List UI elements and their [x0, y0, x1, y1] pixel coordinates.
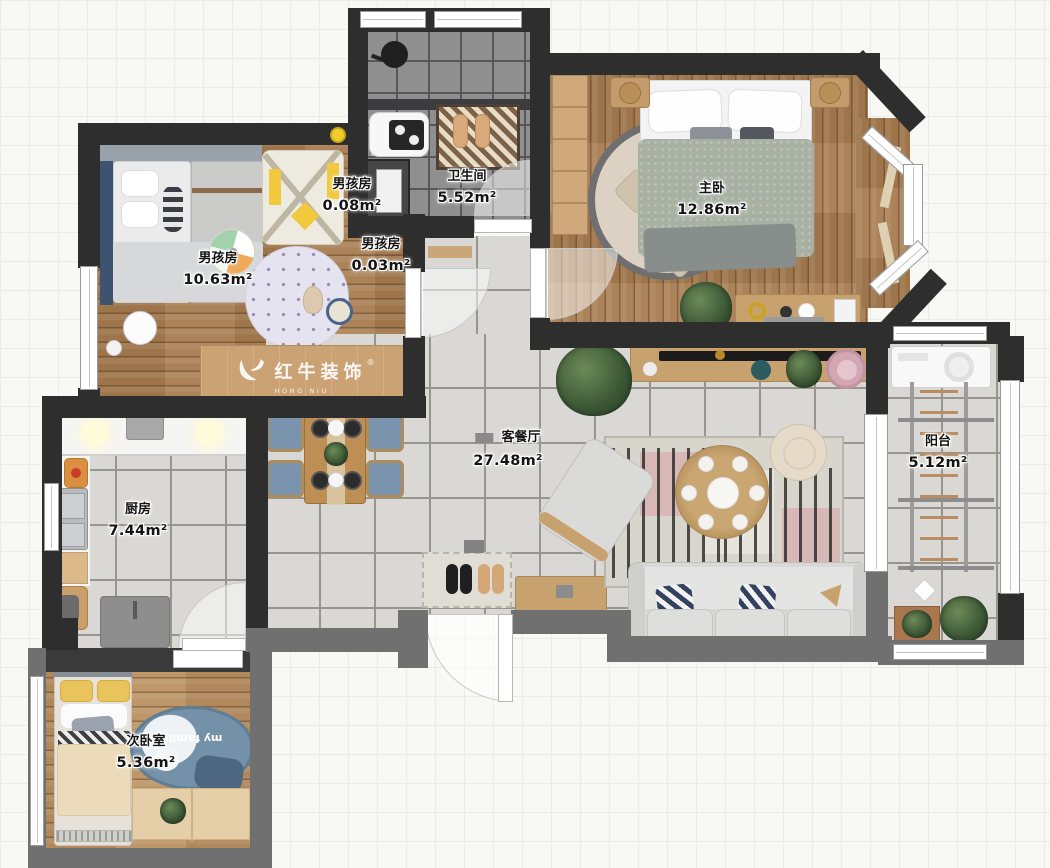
- boys-room-door-leaf: [405, 268, 421, 338]
- wall-entry-pillar: [398, 610, 428, 668]
- yellow-pillow: [97, 680, 130, 702]
- window-mullion: [876, 417, 877, 569]
- room-area: 0.03m²: [351, 259, 410, 274]
- tomato: [71, 468, 81, 478]
- room-area: 5.52m²: [437, 191, 496, 206]
- room-area: 27.48m²: [473, 454, 542, 469]
- window-mullion: [363, 19, 423, 20]
- doormat-box: [464, 540, 484, 553]
- dining-chair: [266, 414, 304, 452]
- window-mullion: [896, 652, 984, 653]
- window-mullion: [1010, 383, 1011, 591]
- ceiling-light: [82, 420, 108, 446]
- window-mullion: [913, 167, 914, 243]
- lamp-shade: [732, 514, 748, 530]
- shower-head: [381, 41, 408, 68]
- black-shoe: [460, 564, 472, 594]
- nightstand: [810, 77, 850, 108]
- second-bedroom-doorway: [173, 650, 243, 668]
- window-balcony-bottom: [893, 644, 987, 660]
- room-label-master-bedroom: 主卧 12.86m²: [677, 182, 746, 218]
- room-name: 厨房: [108, 503, 167, 516]
- room-label-kitchen: 厨房 7.44m²: [108, 503, 167, 539]
- boys-toy-bin: [326, 298, 353, 325]
- tan-slipper: [478, 564, 490, 594]
- armchair-seat: [837, 360, 857, 380]
- planter-plant: [902, 610, 932, 638]
- fridge: [100, 596, 170, 648]
- serving-plate: [328, 472, 344, 488]
- wall-master-left-lower: [530, 318, 550, 350]
- master-wardrobe: [552, 75, 588, 235]
- wall-boys-top: [78, 123, 360, 145]
- fridge-handle: [133, 601, 137, 619]
- lamp-shade: [681, 485, 697, 501]
- wall-balcony-right-block: [998, 336, 1024, 382]
- watermark-band: 红牛装饰 ® HONG NIU DECORATION: [200, 345, 410, 397]
- lamp-shade: [698, 514, 714, 530]
- window-boys-left: [80, 266, 98, 390]
- desk-divider: [191, 789, 193, 841]
- room-label-bathroom: 卫生间 5.52m²: [437, 170, 496, 206]
- wall-living-balcony-divider-top: [866, 336, 888, 416]
- boys-polkadot-rug: [245, 246, 349, 350]
- washer-panel: [898, 353, 928, 361]
- nightstand: [610, 77, 650, 108]
- room-label-boys-closet-low: 男孩房 0.03m²: [351, 238, 410, 274]
- room-name: 次卧室: [116, 735, 175, 748]
- hall-threshold: [428, 246, 472, 258]
- drying-rack-crossbar: [898, 566, 994, 570]
- window-mullion: [896, 333, 984, 334]
- bathroom-rug: [436, 104, 520, 170]
- master-throw-blanket: [643, 223, 796, 272]
- tv-decor-teal: [751, 360, 771, 380]
- living-plant-large: [556, 344, 632, 416]
- entry-doormat: [422, 552, 512, 608]
- window-balcony-top: [893, 326, 987, 341]
- window-bath-top-1: [360, 11, 426, 28]
- balcony-plant: [940, 596, 988, 642]
- drying-rack-crossbar: [898, 418, 994, 422]
- window-mullion: [437, 19, 519, 20]
- wall-boys-left-upper: [78, 123, 100, 268]
- living-label-swatch: [475, 433, 493, 443]
- room-area: 5.12m²: [908, 456, 967, 471]
- dinner-plate: [343, 419, 362, 438]
- dresser-box: [834, 299, 856, 323]
- room-name: 客餐厅: [501, 431, 540, 444]
- pouf: [770, 424, 827, 481]
- wall-living-balcony-divider-bottom: [866, 570, 888, 648]
- drying-rack-pole: [964, 382, 968, 572]
- master-door-leaf: [530, 248, 546, 318]
- washer-drum: [944, 352, 974, 382]
- wall-balcony-right-block: [998, 593, 1024, 643]
- window-bay-middle: [903, 164, 923, 246]
- boys-striped-pillow: [163, 186, 183, 232]
- window-balcony-right: [1000, 380, 1020, 594]
- room-label-balcony: 阳台 5.12m²: [908, 435, 967, 471]
- pink-armchair: [826, 349, 866, 389]
- bathroom-door-leaf: [474, 219, 532, 233]
- wall-bath-bottom: [348, 216, 474, 238]
- watermark-registered-icon: ®: [367, 358, 375, 367]
- wall-master-bottom: [548, 322, 890, 348]
- drying-rack-rungs: [920, 390, 958, 570]
- desk-plant: [160, 798, 186, 824]
- room-name: 主卧: [677, 182, 746, 195]
- hongniu-bull-logo: [236, 355, 268, 387]
- ceiling-light: [196, 420, 222, 446]
- room-name: 卫生间: [437, 170, 496, 183]
- wall-bath-right: [530, 8, 550, 248]
- wall-boys-right-lower: [403, 336, 425, 398]
- boys-bed-rail: [100, 161, 113, 305]
- cabinet-handle: [556, 585, 573, 598]
- boys-bed-pillow: [121, 170, 159, 197]
- lamp-shade: [732, 456, 748, 472]
- yellow-pillow: [60, 680, 93, 702]
- room-label-living-dining: 客餐厅 27.48m²: [473, 431, 542, 468]
- yellow-marker-dot: [330, 127, 346, 143]
- rattan-tray: [819, 82, 841, 104]
- balcony-washer: [891, 346, 991, 388]
- drying-rack-crossbar: [898, 498, 994, 502]
- room-label-boys-closet-top: 男孩房 0.08m²: [322, 178, 381, 214]
- serving-plate: [328, 420, 344, 436]
- lamp-center: [707, 477, 739, 509]
- cutting-board: [64, 458, 88, 488]
- room-name: 男孩房: [322, 178, 381, 191]
- lamp-shade: [698, 456, 714, 472]
- living-plant-small: [786, 350, 822, 388]
- window-bath-top-2: [434, 11, 522, 28]
- boys-side-table: [123, 311, 157, 345]
- rattan-tray: [619, 82, 641, 104]
- wall-sofa-back: [615, 636, 892, 662]
- second-bed-footrail: [56, 830, 132, 842]
- boys-bed-pillow: [121, 201, 159, 228]
- sink-basin-dot: [409, 135, 419, 145]
- dining-centerpiece-plant: [324, 442, 348, 466]
- tv-decor-white: [643, 362, 657, 376]
- wall-kitchen-pillar: [44, 618, 78, 650]
- dining-chair: [366, 460, 404, 498]
- lamp-shade: [749, 485, 765, 501]
- tan-slipper: [492, 564, 504, 594]
- window-mullion: [51, 486, 52, 548]
- window-second-left: [30, 676, 44, 846]
- window-mullion: [89, 269, 90, 387]
- room-name: 男孩房: [183, 252, 252, 265]
- window-kitchen-left: [44, 483, 59, 551]
- boys-teddy-bear: [303, 286, 323, 314]
- wall-second-right: [250, 648, 272, 868]
- wall-master-top: [530, 53, 880, 75]
- balcony-sliding-door: [864, 414, 888, 572]
- wall-boys-kitchen-top: [42, 396, 426, 418]
- wall-second-bottom: [28, 848, 272, 868]
- drying-rack-pole: [910, 382, 914, 572]
- bathroom-sink-unit: [369, 112, 429, 157]
- floor-plan: 红牛装饰 ® HONG NIU DECORATION: [0, 0, 1050, 868]
- entry-door-leaf: [498, 614, 513, 702]
- wall-kitchen-right: [246, 396, 268, 632]
- slipper: [475, 114, 490, 148]
- slipper: [453, 114, 468, 148]
- pendant-lamp-ring: [675, 445, 769, 539]
- sink-tray: [389, 120, 424, 150]
- watermark-brand: 红牛装饰: [275, 358, 367, 384]
- room-area: 10.63m²: [183, 273, 252, 288]
- dinner-plate: [343, 471, 362, 490]
- room-area: 0.08m²: [322, 199, 381, 214]
- dining-chair: [366, 414, 404, 452]
- shoe-cabinet: [515, 576, 607, 612]
- room-area: 12.86m²: [677, 203, 746, 218]
- pouf-swirl: [783, 437, 816, 470]
- room-area: 7.44m²: [108, 524, 167, 539]
- room-area: 5.36m²: [116, 756, 175, 771]
- sink-basin-dot: [395, 125, 405, 135]
- window-mullion: [37, 679, 38, 843]
- room-name: 男孩房: [351, 238, 410, 251]
- dining-chair: [266, 460, 304, 498]
- second-bedroom-desk: [132, 788, 250, 840]
- tv-decor-gold: [715, 350, 725, 360]
- boys-stool: [106, 340, 122, 356]
- tent-yellow-strip: [269, 169, 281, 205]
- room-name: 阳台: [908, 435, 967, 448]
- black-shoe: [446, 564, 458, 594]
- room-label-second-bedroom: 次卧室 5.36m²: [116, 735, 175, 771]
- room-label-boys-room: 男孩房 10.63m²: [183, 252, 252, 288]
